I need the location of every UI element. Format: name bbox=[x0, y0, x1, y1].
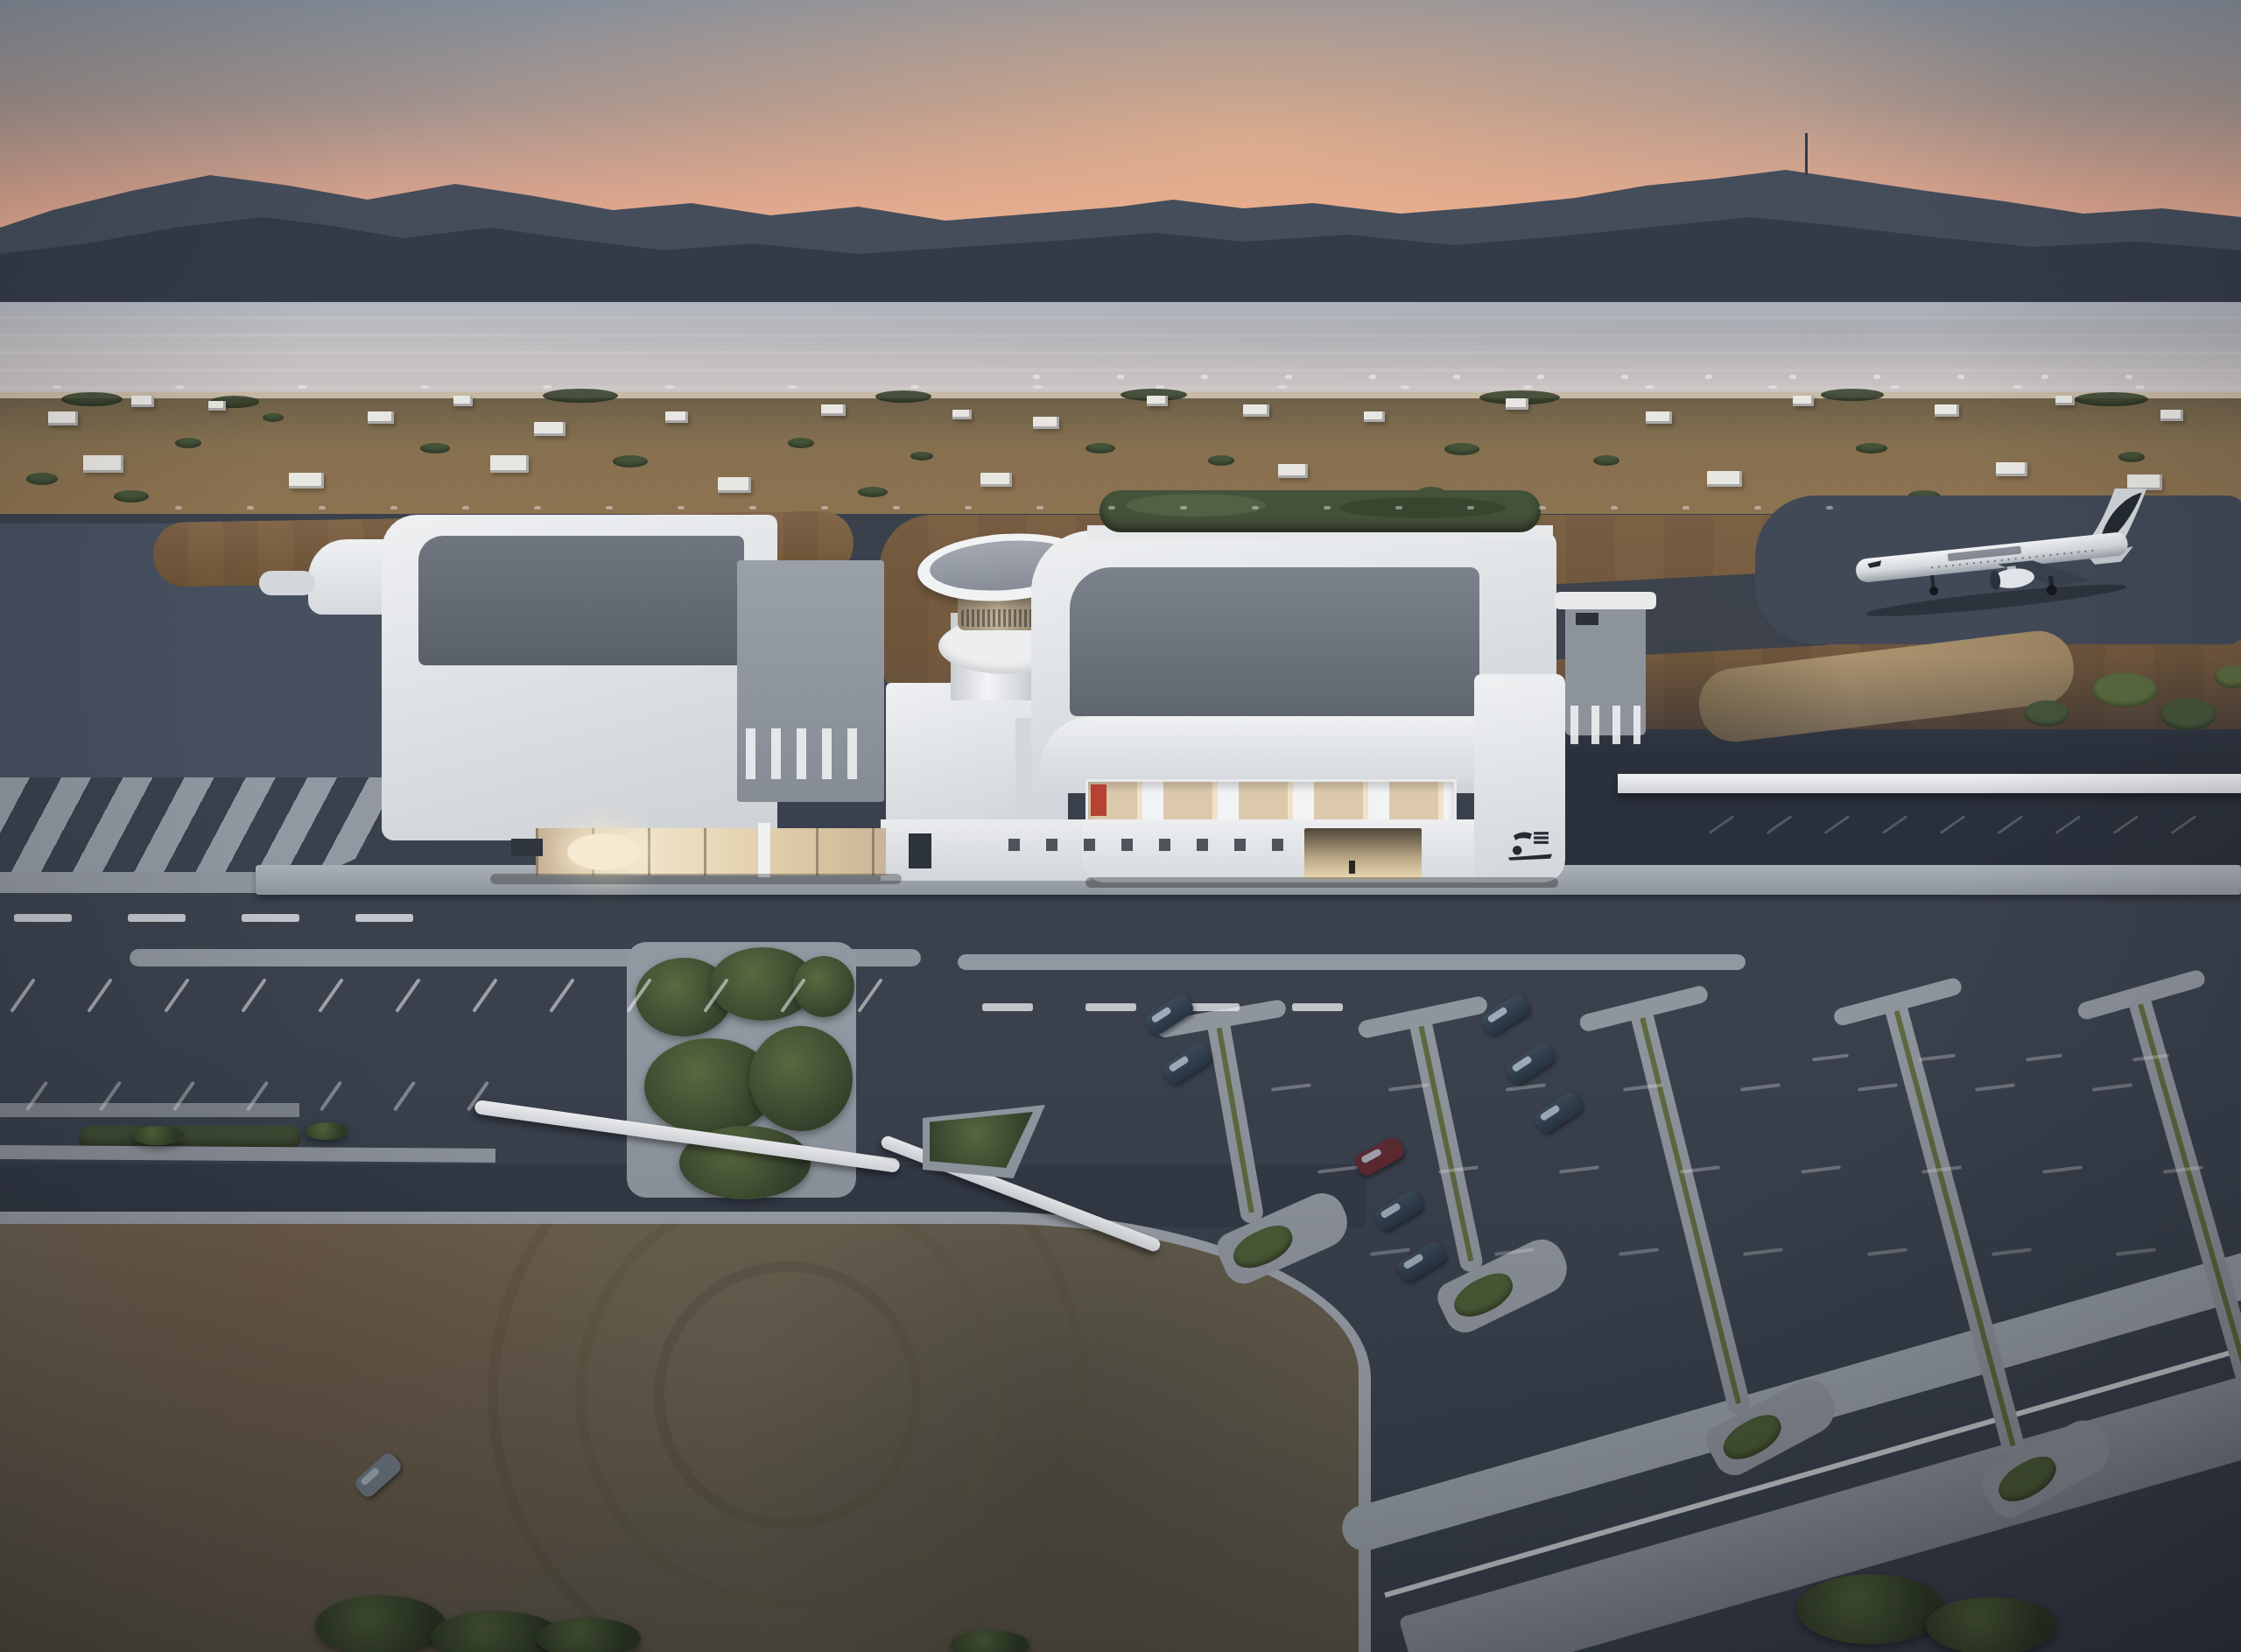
line bbox=[2171, 815, 2197, 834]
dash bbox=[1180, 506, 1187, 510]
car bbox=[1372, 1188, 1425, 1233]
tree bbox=[951, 1630, 1029, 1652]
dash bbox=[1252, 506, 1259, 510]
dash bbox=[1921, 1165, 1962, 1174]
line bbox=[318, 978, 344, 1013]
line bbox=[164, 978, 190, 1013]
line bbox=[1882, 815, 1908, 834]
car bbox=[352, 1451, 404, 1501]
line bbox=[87, 978, 113, 1013]
dash bbox=[247, 506, 254, 510]
dash bbox=[2116, 1248, 2156, 1256]
line bbox=[2055, 815, 2082, 834]
dash bbox=[1619, 1248, 1659, 1256]
dash bbox=[1992, 1248, 2032, 1256]
car bbox=[1503, 1041, 1556, 1086]
dash bbox=[1680, 1165, 1720, 1174]
dash bbox=[1611, 506, 1618, 510]
tree bbox=[131, 1126, 184, 1145]
line bbox=[1998, 815, 2024, 834]
dash bbox=[1189, 1003, 1240, 1011]
dash bbox=[1271, 1083, 1311, 1092]
line bbox=[1824, 815, 1851, 834]
dash bbox=[1740, 1083, 1781, 1092]
dash bbox=[893, 506, 900, 510]
dash bbox=[128, 914, 186, 922]
tree bbox=[1926, 1597, 2057, 1652]
line bbox=[320, 1080, 342, 1111]
dash bbox=[606, 506, 613, 510]
dash bbox=[1801, 1165, 1841, 1174]
dash bbox=[1036, 506, 1043, 510]
dash bbox=[1317, 1165, 1358, 1174]
dash bbox=[1858, 1083, 1898, 1092]
car bbox=[1160, 1041, 1213, 1086]
dash bbox=[242, 914, 299, 922]
dash bbox=[965, 506, 972, 510]
airport-aerial-scene bbox=[0, 0, 2241, 1652]
tree bbox=[1796, 1574, 1945, 1644]
line bbox=[241, 978, 267, 1013]
dash bbox=[1683, 506, 1690, 510]
bush bbox=[2160, 699, 2216, 730]
car bbox=[1531, 1090, 1584, 1135]
dash bbox=[1395, 506, 1402, 510]
bush bbox=[2024, 700, 2069, 727]
line bbox=[393, 1080, 416, 1111]
dash bbox=[1743, 1248, 1783, 1256]
dash bbox=[821, 506, 828, 510]
dash bbox=[1292, 1003, 1343, 1011]
line bbox=[780, 978, 806, 1013]
car bbox=[1352, 1135, 1407, 1177]
dash bbox=[1867, 1248, 1907, 1256]
line bbox=[246, 1080, 269, 1111]
dash bbox=[355, 914, 413, 922]
dash bbox=[534, 506, 541, 510]
dash bbox=[1108, 506, 1115, 510]
dash bbox=[1388, 1083, 1429, 1092]
dash bbox=[1494, 1248, 1535, 1256]
dash bbox=[749, 506, 756, 510]
line bbox=[172, 1080, 195, 1111]
line bbox=[472, 978, 498, 1013]
line bbox=[1940, 815, 1966, 834]
dash bbox=[1085, 1003, 1136, 1011]
line bbox=[467, 1080, 489, 1111]
line bbox=[395, 978, 421, 1013]
dash bbox=[1975, 1083, 2015, 1092]
dash bbox=[1506, 1083, 1546, 1092]
line bbox=[549, 978, 575, 1013]
line bbox=[857, 978, 883, 1013]
dash bbox=[2092, 1083, 2132, 1092]
line bbox=[1709, 815, 1735, 834]
dash bbox=[1539, 506, 1546, 510]
dash bbox=[2042, 1165, 2083, 1174]
dash bbox=[1826, 506, 1833, 510]
tree bbox=[305, 1122, 348, 1140]
dash bbox=[175, 506, 182, 510]
dash bbox=[14, 914, 72, 922]
car bbox=[1479, 992, 1532, 1037]
line bbox=[99, 1080, 122, 1111]
dash bbox=[1559, 1165, 1599, 1174]
dash bbox=[319, 506, 326, 510]
near-decor-layer bbox=[0, 0, 2241, 1652]
line bbox=[1767, 815, 1793, 834]
line bbox=[2113, 815, 2139, 834]
line bbox=[25, 1080, 48, 1111]
dash bbox=[2132, 1053, 2169, 1061]
dash bbox=[1812, 1053, 1849, 1061]
dash bbox=[1754, 506, 1761, 510]
dash bbox=[2026, 1053, 2062, 1061]
tree bbox=[315, 1595, 446, 1652]
dash bbox=[462, 506, 469, 510]
dash bbox=[678, 506, 685, 510]
dash bbox=[1324, 506, 1331, 510]
dash bbox=[1438, 1165, 1479, 1174]
dash bbox=[390, 506, 397, 510]
dash bbox=[1370, 1248, 1410, 1256]
dash bbox=[1919, 1053, 1956, 1061]
bush bbox=[2215, 665, 2241, 688]
car bbox=[1394, 1239, 1448, 1283]
dash bbox=[1467, 506, 1474, 510]
line bbox=[626, 978, 652, 1013]
line bbox=[703, 978, 729, 1013]
car bbox=[1142, 992, 1196, 1037]
tree bbox=[536, 1618, 641, 1652]
line bbox=[10, 978, 36, 1013]
bush bbox=[2092, 672, 2157, 707]
dash bbox=[2163, 1165, 2203, 1174]
dash bbox=[982, 1003, 1033, 1011]
dash bbox=[1623, 1083, 1663, 1092]
